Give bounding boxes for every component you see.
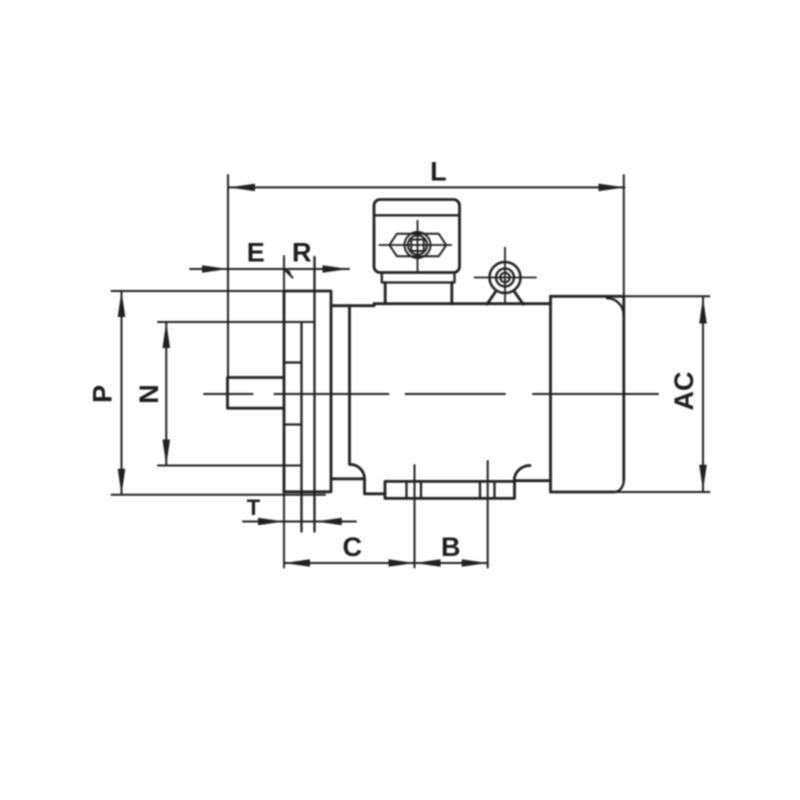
svg-text:N: N xyxy=(134,384,164,404)
svg-text:R: R xyxy=(292,238,312,268)
svg-text:E: E xyxy=(247,238,265,268)
svg-text:P: P xyxy=(87,385,117,403)
svg-text:AC: AC xyxy=(669,372,699,411)
svg-text:L: L xyxy=(430,157,447,187)
svg-text:T: T xyxy=(247,495,261,520)
svg-text:B: B xyxy=(441,532,461,562)
svg-text:C: C xyxy=(343,532,363,562)
